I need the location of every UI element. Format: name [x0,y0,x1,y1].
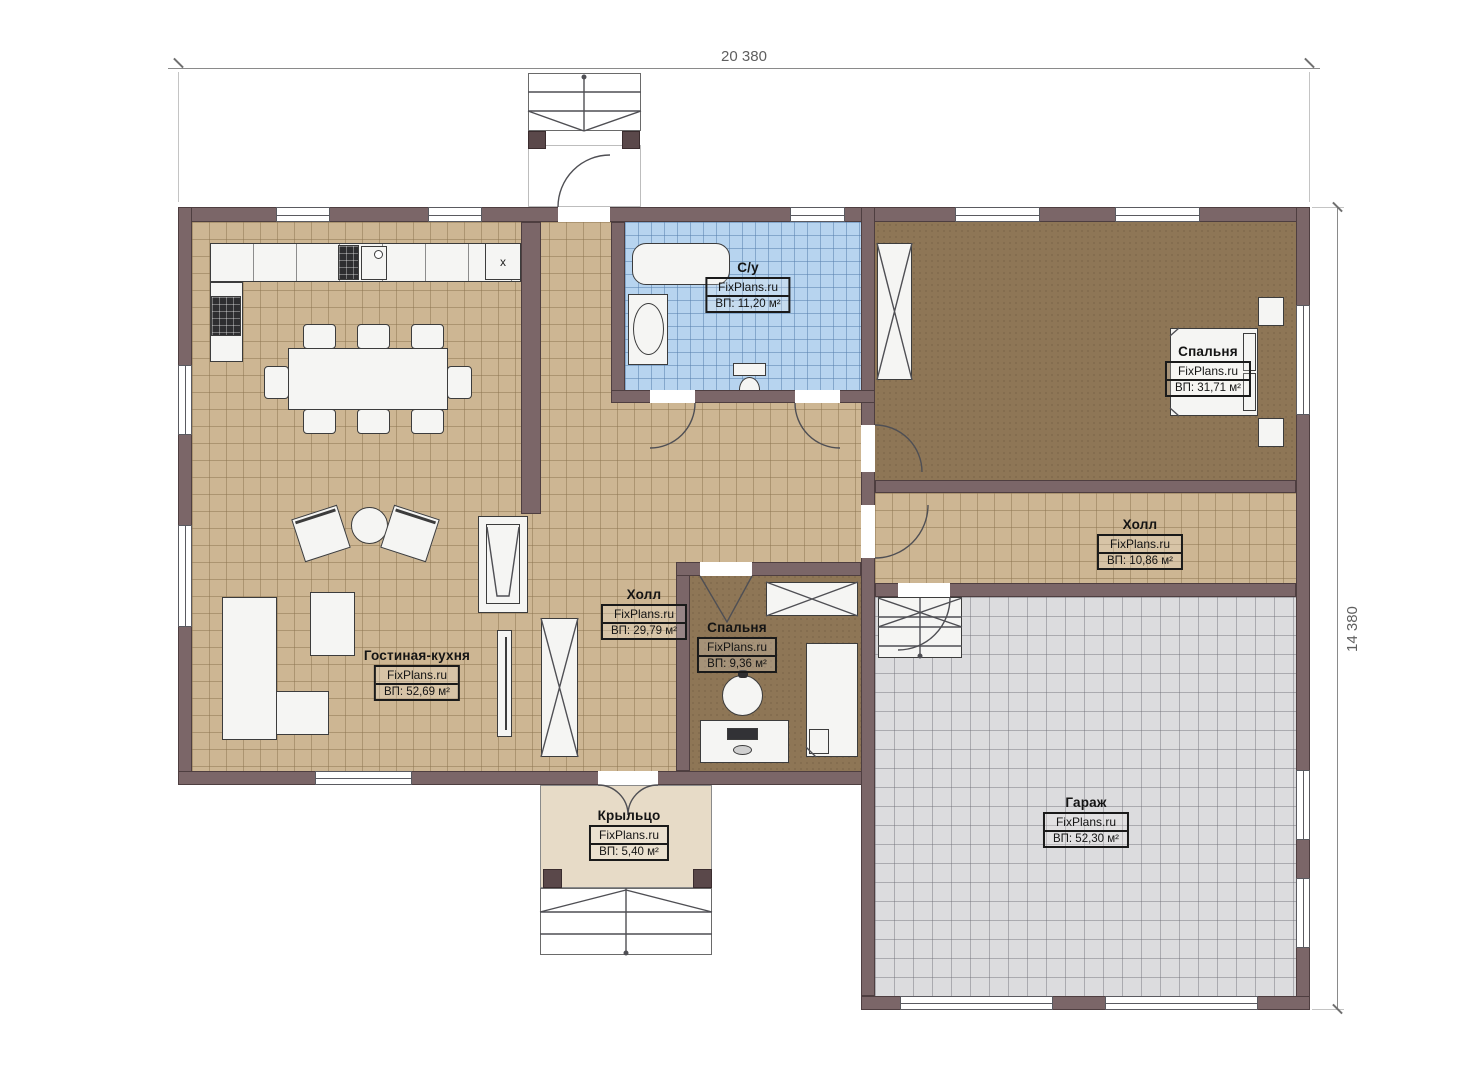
room-name: Спальня [707,620,767,635]
room-name: Крыльцо [598,808,661,823]
room-label-garage: Гараж FixPlans.ru ВП: 52,30 м² [1043,795,1129,848]
wall-bedroom-hall [875,480,1296,493]
door-opening-hall-right [861,505,875,558]
kitchen-sink [361,246,387,280]
dining-chair [411,324,444,349]
room-area: ВП: 29,79 м² [603,624,685,638]
dimension-extension [178,72,179,202]
brand-text: FixPlans.ru [1099,536,1181,554]
door-opening-main-entrance [598,771,658,785]
hall-right-floor [875,493,1296,597]
room-label-living-kitchen: Гостиная-кухня FixPlans.ru ВП: 52,69 м² [364,648,470,701]
door-opening-bedroom-main [861,425,875,472]
wardrobe-bedroom-main [877,243,912,380]
room-name: Холл [1123,517,1158,532]
dimension-height-label: 14 380 [1344,606,1361,652]
wall-bathroom-left [611,222,625,403]
nightstand [1258,297,1284,326]
window [790,207,845,222]
nightstand [1258,418,1284,447]
window [955,207,1040,222]
room-name: С/у [737,260,759,275]
dimension-width-label: 20 380 [721,48,767,65]
toilet-tank [733,363,766,376]
window [428,207,482,222]
kitchen-cabinet: x [485,243,521,280]
room-area: ВП: 10,86 м² [1099,554,1181,568]
monitor [727,728,758,740]
window [315,771,412,785]
dining-chair [264,366,289,399]
dimension-line-top [168,68,1320,69]
dimension-tick [173,58,184,69]
room-area: ВП: 5,40 м² [591,845,667,859]
porch-post [528,131,546,149]
brand-text: FixPlans.ru [1167,363,1249,381]
wardrobe-hall [541,618,578,757]
garage-door [1105,996,1258,1010]
door-opening-garage [898,583,950,597]
washbasin [633,303,664,355]
stove [211,296,241,336]
room-name: Гостиная-кухня [364,648,470,663]
room-label-hall-right: Холл FixPlans.ru ВП: 10,86 м² [1097,517,1183,570]
room-label-bedroom-small: Спальня FixPlans.ru ВП: 9,36 м² [697,620,777,673]
dining-chair [357,409,390,434]
room-area: ВП: 52,69 м² [376,685,458,699]
room-label-porch: Крыльцо FixPlans.ru ВП: 5,40 м² [589,808,669,861]
tv-stand [497,630,512,737]
sofa [222,597,277,740]
dining-chair [303,324,336,349]
floor-plan: x [0,0,1473,1080]
room-name: Гараж [1065,795,1106,810]
porch-post [543,869,562,888]
room-name: Холл [627,587,662,602]
wall-exterior-left [178,207,192,785]
fireplace-inner [486,524,520,604]
dish-drainer [338,245,359,280]
brand-text: FixPlans.ru [603,606,685,624]
brand-text: FixPlans.ru [699,639,775,657]
wall-exterior-bottom-left [178,771,875,785]
room-area: ВП: 31,71 м² [1167,381,1249,395]
coffee-table [310,592,355,656]
dimension-extension [1309,72,1310,202]
garage-door [900,996,1053,1010]
dimension-line-right [1337,207,1338,1010]
wardrobe-bedroom-small [766,582,858,616]
window [1296,770,1310,840]
window [276,207,330,222]
desk [700,720,789,763]
dining-chair [357,324,390,349]
dining-chair [447,366,472,399]
room-label-hall-main: Холл FixPlans.ru ВП: 29,79 м² [601,587,687,640]
wall-wing-divider [861,207,875,996]
dining-chair [303,409,336,434]
dining-chair [411,409,444,434]
window [1115,207,1200,222]
stairs [878,597,962,658]
top-porch-steps [528,73,641,131]
keyboard-mouse [733,745,752,755]
room-area: ВП: 11,20 м² [707,297,788,311]
door-opening-top-entrance [558,207,610,222]
window [178,525,192,627]
door-opening-bathroom [650,390,695,403]
window [178,365,192,435]
room-area: ВП: 9,36 м² [699,657,775,671]
wall-kitchen-hall [521,222,541,514]
window [1296,305,1310,415]
room-name: Спальня [1178,344,1238,359]
pillow [809,729,829,754]
dimension-tick [1304,58,1315,69]
room-area: ВП: 52,30 м² [1045,832,1127,846]
kitchen-cabinet-mark: x [500,255,506,269]
porch-steps [540,888,712,955]
sofa-chaise [276,691,329,735]
brand-text: FixPlans.ru [591,827,667,845]
top-porch-slab [528,145,641,207]
porch-post [693,869,712,888]
window [1296,878,1310,948]
dining-table [288,348,448,410]
desk-chair [722,675,763,716]
room-label-bathroom: С/у FixPlans.ru ВП: 11,20 м² [705,260,790,313]
brand-text: FixPlans.ru [707,279,788,297]
porch-post [622,131,640,149]
door-opening-bathroom [795,390,840,403]
brand-text: FixPlans.ru [1045,814,1127,832]
door-opening-bedroom-small [700,562,752,576]
room-label-bedroom-main: Спальня FixPlans.ru ВП: 31,71 м² [1165,344,1251,397]
brand-text: FixPlans.ru [376,667,458,685]
